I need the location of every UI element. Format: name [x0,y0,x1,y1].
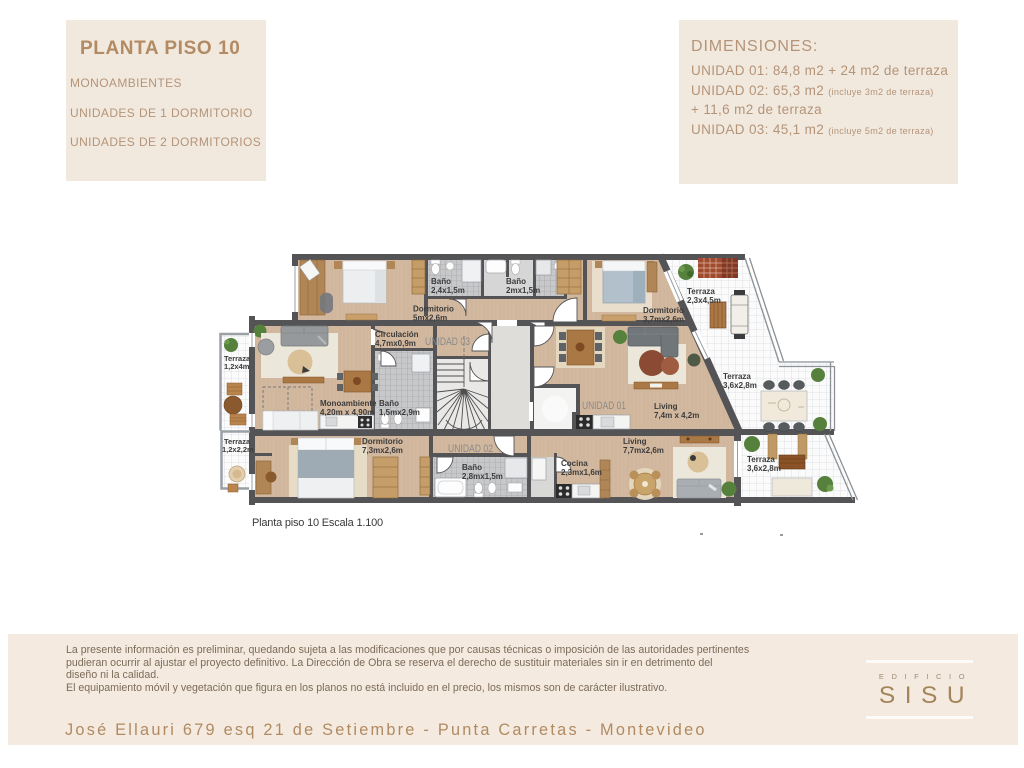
svg-text:1,2x2,2m: 1,2x2,2m [222,445,254,454]
svg-text:Dormitorio: Dormitorio [362,437,403,446]
svg-text:UNIDAD 03: UNIDAD 03 [425,336,470,348]
svg-text:2,4x1,5m: 2,4x1,5m [431,286,465,295]
svg-text:7,4m x 4,2m: 7,4m x 4,2m [654,411,699,420]
svg-text:5mx2,6m: 5mx2,6m [413,314,447,323]
svg-text:3,6x2,8m: 3,6x2,8m [723,381,757,390]
svg-text:Baño: Baño [431,277,451,286]
svg-text:Terraza: Terraza [687,287,715,296]
svg-text:3,7mx2,6m: 3,7mx2,6m [643,315,684,324]
svg-text:7,7mx2,6m: 7,7mx2,6m [623,446,664,455]
svg-text:Dormitorio: Dormitorio [643,306,684,315]
svg-text:2,3x4,5m: 2,3x4,5m [687,296,721,305]
svg-text:UNIDAD 01: UNIDAD 01 [582,400,626,412]
svg-text:1,2x4m: 1,2x4m [224,362,250,371]
svg-text:1,5mx2,9m: 1,5mx2,9m [379,408,420,417]
svg-text:Baño: Baño [379,399,399,408]
svg-text:UNIDAD 02: UNIDAD 02 [448,443,493,455]
svg-text:Terraza: Terraza [723,372,751,381]
svg-text:2mx1,5m: 2mx1,5m [506,286,540,295]
svg-text:Baño: Baño [506,277,526,286]
svg-text:4,7mx0,9m: 4,7mx0,9m [375,339,416,348]
svg-text:Dormitorio: Dormitorio [413,305,454,314]
svg-text:3,6x2,8m: 3,6x2,8m [747,464,781,473]
svg-text:Monoambiente: Monoambiente [320,399,377,408]
svg-text:7,3mx2,6m: 7,3mx2,6m [362,446,403,455]
svg-text:Living: Living [623,437,647,446]
svg-text:2,8mx1,5m: 2,8mx1,5m [462,472,503,481]
svg-text:Baño: Baño [462,463,482,472]
svg-text:Terraza: Terraza [747,455,775,464]
svg-text:Living: Living [654,402,678,411]
svg-text:2,3mx1,6m: 2,3mx1,6m [561,468,602,477]
svg-text:Circulación: Circulación [375,330,419,339]
svg-text:4,20m x 4,90m: 4,20m x 4,90m [320,408,374,417]
svg-text:Cocina: Cocina [561,459,588,468]
